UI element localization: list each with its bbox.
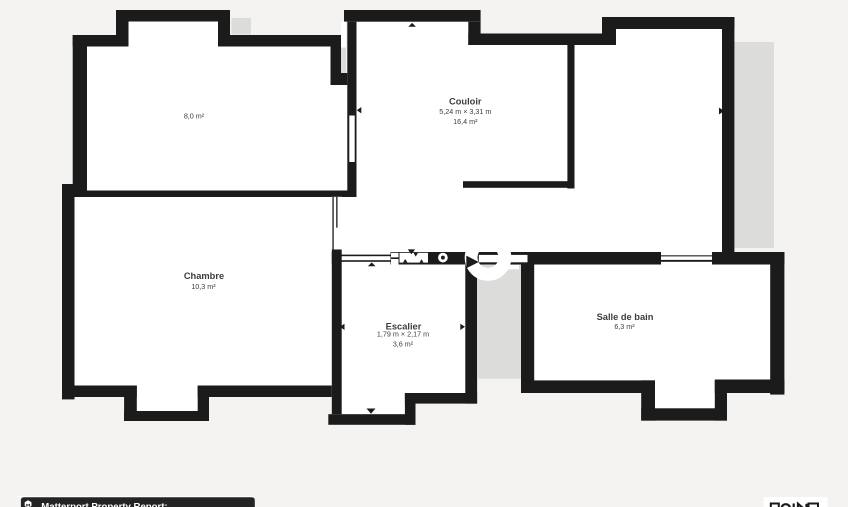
svg-text:5,24 m × 3,31 m: 5,24 m × 3,31 m	[439, 107, 491, 116]
svg-text:8,0 m²: 8,0 m²	[184, 112, 205, 121]
svg-text:Couloir: Couloir	[449, 97, 482, 107]
svg-text:Matterport Property Report:: Matterport Property Report:	[41, 502, 167, 507]
svg-text:1,79 m × 2,17 m: 1,79 m × 2,17 m	[377, 329, 429, 338]
svg-text:Chambre: Chambre	[184, 271, 224, 281]
svg-text:Salle de bain: Salle de bain	[597, 312, 654, 322]
svg-text:10,3 m²: 10,3 m²	[191, 282, 216, 291]
svg-text:6,3 m²: 6,3 m²	[614, 322, 635, 331]
svg-text:16,4 m²: 16,4 m²	[453, 117, 478, 126]
svg-text:3,6 m²: 3,6 m²	[393, 340, 414, 349]
